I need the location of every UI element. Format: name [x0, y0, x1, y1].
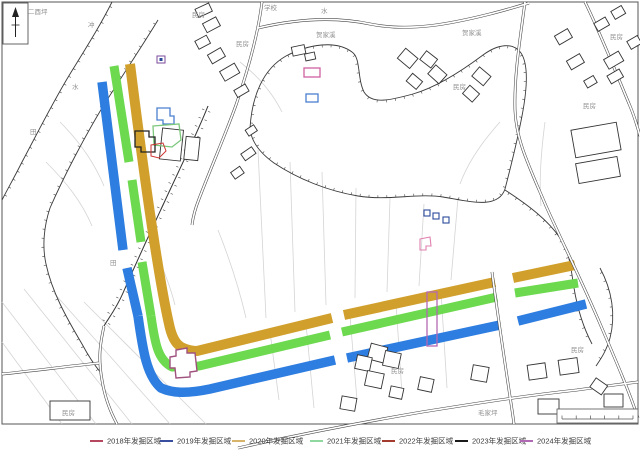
legend-item: 2021年发掘区域 [310, 432, 381, 450]
legend-label: 2022年发掘区域 [399, 436, 453, 445]
legend-swatch [455, 440, 468, 442]
map-canvas: 二酉坪冲水田田民房学校水贺家溪民房贺家溪民房民房民房民房民房民房毛家坪 [0, 0, 640, 450]
legend-item: 2023年发掘区域 [455, 432, 526, 450]
legend: 2018年发掘区域2019年发掘区域2020年发掘区域2021年发掘区域2022… [0, 429, 640, 449]
legend-swatch [382, 440, 395, 442]
place-label: 水 [72, 82, 79, 91]
site-map-page: 二酉坪冲水田田民房学校水贺家溪民房贺家溪民房民房民房民房民房民房毛家坪 2018… [0, 0, 640, 450]
legend-label: 2021年发掘区域 [327, 436, 381, 445]
place-label: 民房 [571, 345, 584, 354]
legend-item: 2018年发掘区域 [90, 432, 161, 450]
place-label: 民房 [453, 82, 466, 91]
place-label: 水 [321, 6, 328, 15]
legend-label: 2018年发掘区域 [107, 436, 161, 445]
place-label: 民房 [610, 32, 623, 41]
place-label: 民房 [583, 101, 596, 110]
legend-label: 2020年发掘区域 [249, 436, 303, 445]
marker-tiny-blue-fill [160, 58, 163, 61]
legend-label: 2023年发掘区域 [472, 436, 526, 445]
place-label: 民房 [236, 39, 249, 48]
place-label: 冲 [88, 20, 95, 29]
legend-swatch [90, 440, 103, 442]
place-label: 二酉坪 [28, 8, 48, 16]
scale-bar [557, 409, 638, 423]
legend-item: 2019年发掘区域 [160, 432, 231, 450]
legend-item: 2024年发掘区域 [520, 432, 591, 450]
legend-swatch [232, 440, 245, 442]
north-arrow [3, 3, 28, 44]
legend-swatch [160, 440, 173, 442]
legend-item: 2022年发掘区域 [382, 432, 453, 450]
place-label: 田 [110, 259, 117, 267]
place-label: 田 [30, 128, 37, 136]
legend-item: 2020年发掘区域 [232, 432, 303, 450]
place-label: 学校 [264, 3, 278, 12]
legend-swatch [520, 440, 533, 442]
place-label: 民房 [62, 408, 75, 417]
legend-swatch [310, 440, 323, 442]
place-label: 民房 [192, 10, 205, 19]
legend-label: 2024年发掘区域 [537, 436, 591, 445]
place-label: 毛家坪 [478, 408, 498, 417]
place-label: 贺家溪 [462, 28, 482, 37]
place-label: 民房 [391, 366, 404, 375]
place-label: 贺家溪 [316, 30, 336, 39]
legend-label: 2019年发掘区域 [177, 436, 231, 445]
